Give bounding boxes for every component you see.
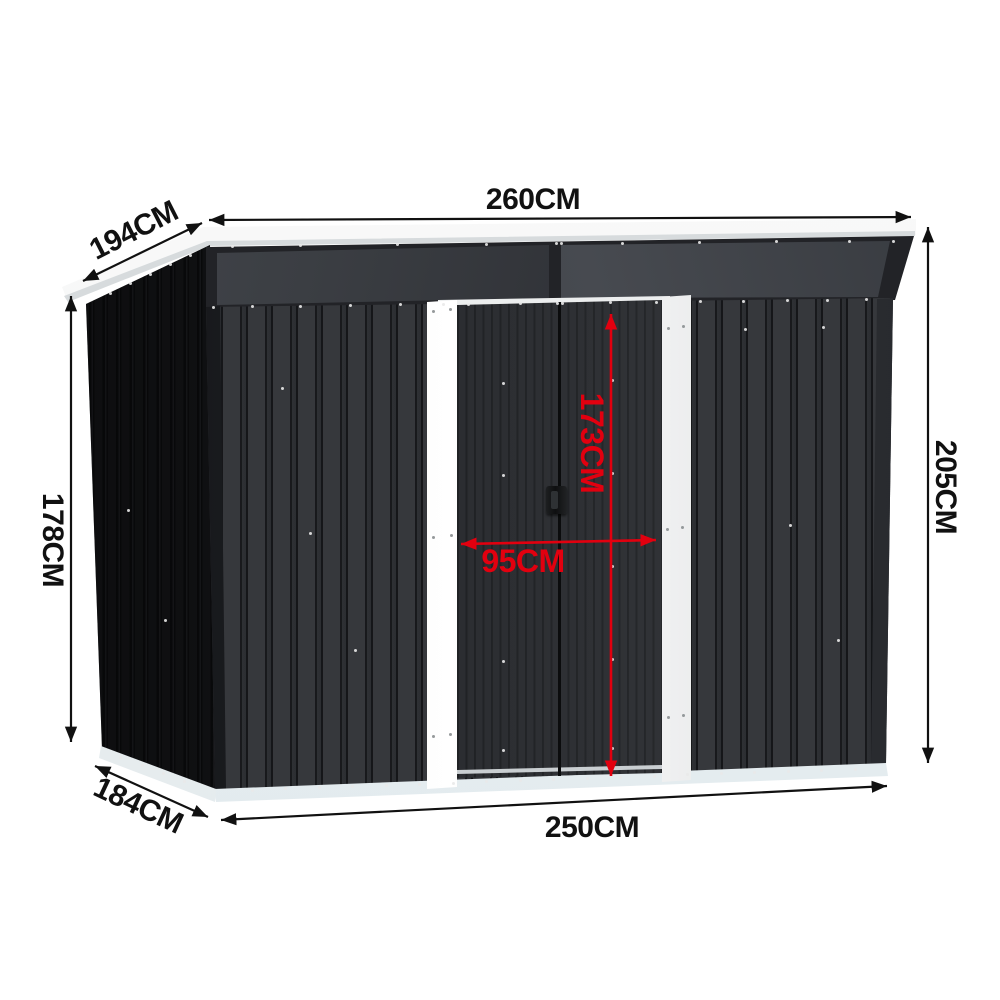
dim-label-height-right: 205CM: [930, 440, 960, 534]
shed-dimension-diagram: 260CM 194CM 178CM 205CM 184CM 250CM 173C…: [0, 0, 1000, 1000]
dim-label-door-width: 95CM: [481, 545, 564, 577]
dim-label-base-width: 250CM: [545, 813, 639, 843]
dim-label-height-left: 178CM: [37, 493, 67, 587]
dim-label-door-height: 173CM: [576, 393, 608, 494]
dimension-arrows: [0, 0, 1000, 1000]
arrow-roof-width: [209, 217, 911, 220]
dim-label-roof-width: 260CM: [486, 185, 580, 215]
